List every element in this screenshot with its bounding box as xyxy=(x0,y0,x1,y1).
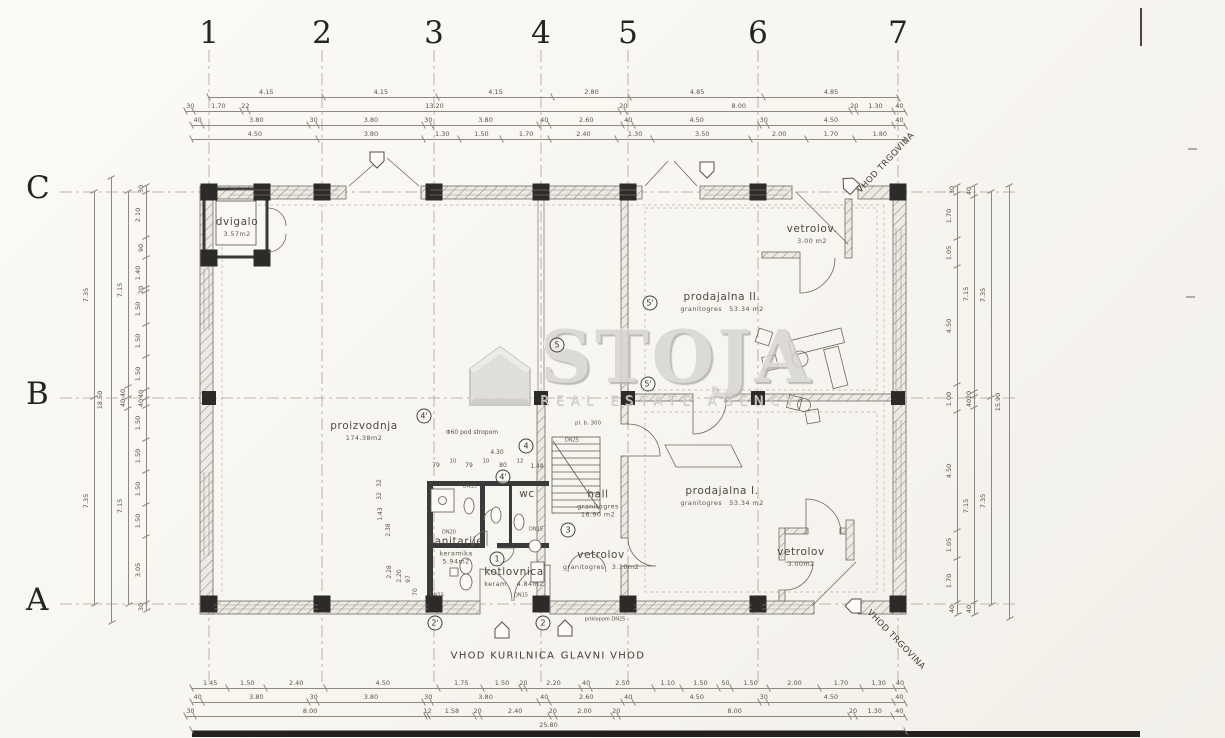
floor-plan-sheet: STOJA REAL ESTATE AGENCY 1234567CBAdviga… xyxy=(0,0,1225,738)
doors xyxy=(268,158,856,606)
elevator-cab xyxy=(216,201,256,245)
floor-plan-drawing xyxy=(0,0,1225,738)
stairs xyxy=(552,437,600,513)
scan-artifacts xyxy=(192,8,1197,737)
fixtures xyxy=(431,489,544,590)
interior-walls xyxy=(537,199,894,601)
